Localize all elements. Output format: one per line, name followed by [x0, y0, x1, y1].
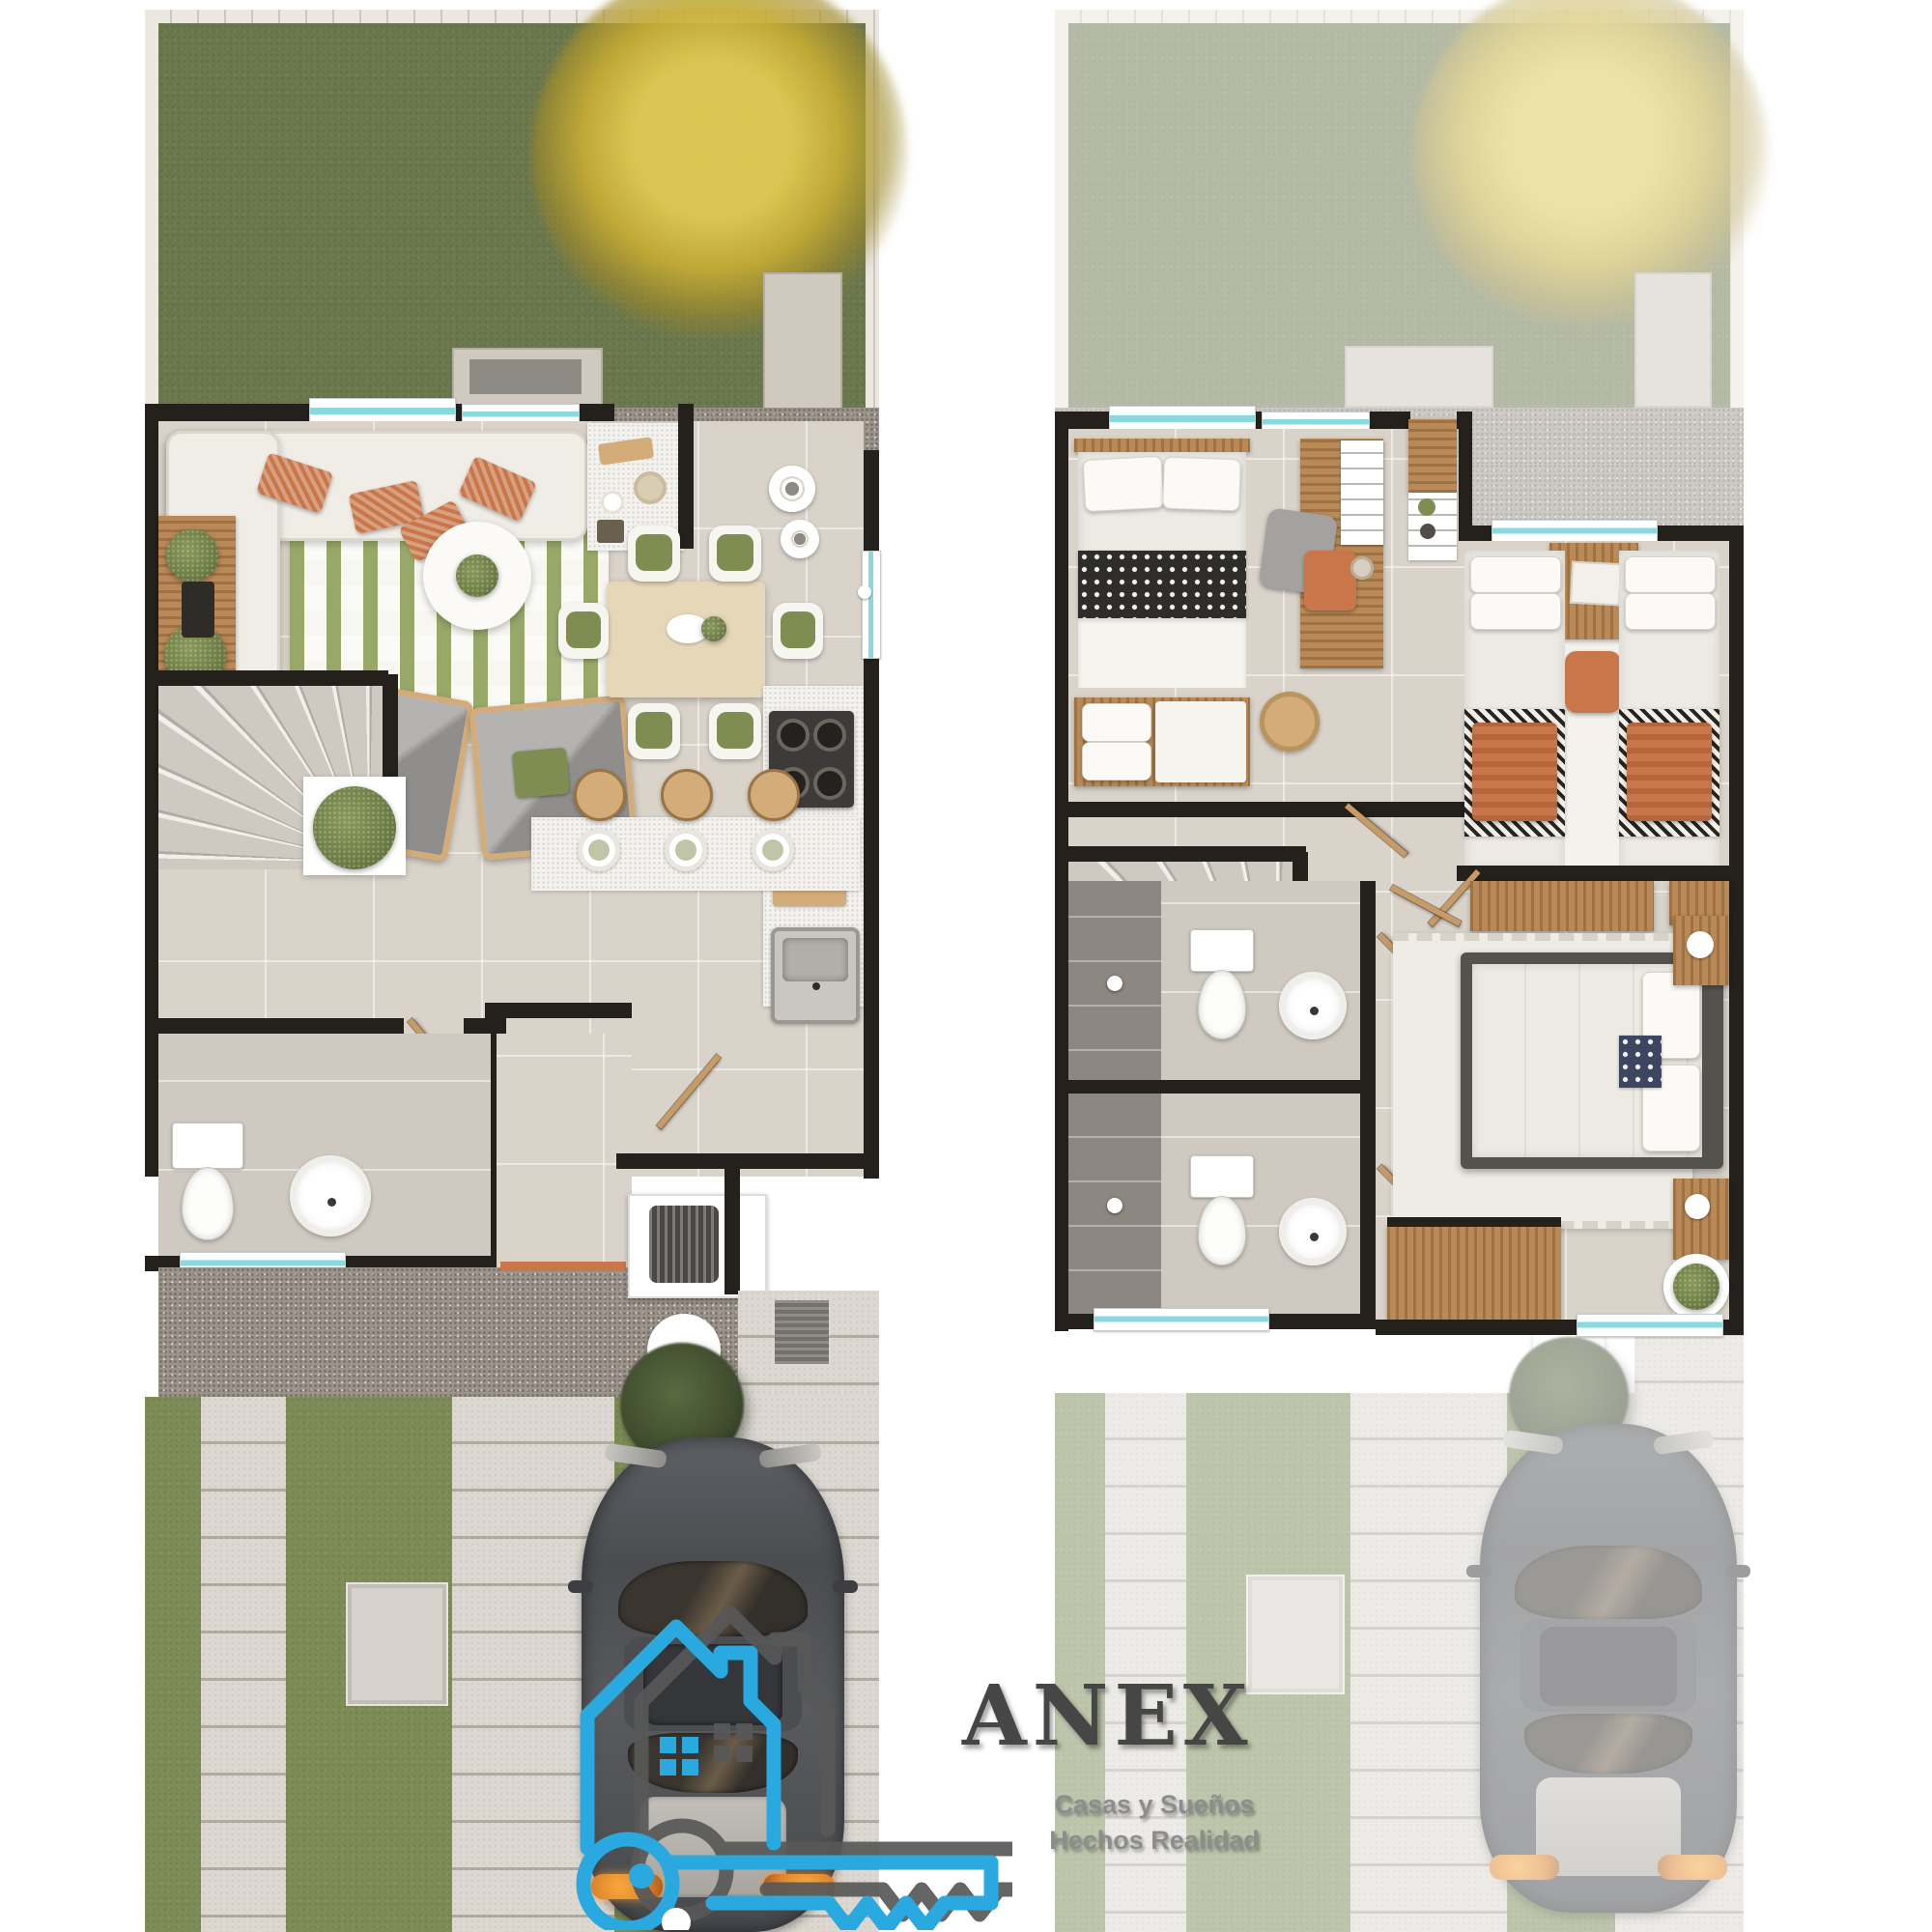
bed-duvet	[1078, 618, 1246, 688]
wardrobe-wall	[1387, 1217, 1561, 1227]
console-plant	[166, 529, 218, 582]
house-key-icon	[568, 1544, 1012, 1930]
anex-logo: ANEX Casas y Sueños Hechos Realidad	[568, 1544, 1302, 1922]
bench-pillow	[1082, 703, 1151, 742]
kitchen-sink	[771, 927, 860, 1024]
patio-step	[500, 1262, 626, 1271]
porch-wall	[724, 1169, 740, 1294]
bathroom-wall	[145, 1018, 404, 1034]
master-window	[1577, 1314, 1723, 1337]
door-mat	[775, 1300, 829, 1364]
hall-wardrobe	[1470, 881, 1654, 931]
paver-pad	[348, 1584, 446, 1704]
desk-clock	[1350, 556, 1374, 580]
small-plant	[1673, 1264, 1719, 1310]
house-wall	[616, 1153, 871, 1169]
bench-throw	[1155, 701, 1246, 782]
toilet-tank	[1190, 929, 1254, 972]
dining-chair	[709, 526, 761, 582]
shelf-bowl	[1418, 498, 1435, 516]
bar-stool	[661, 769, 713, 821]
console-decor	[182, 582, 214, 638]
place-setting	[752, 829, 794, 871]
bed-pillow	[1470, 556, 1561, 593]
car-rear-window	[1524, 1714, 1692, 1774]
place-setting	[578, 829, 620, 871]
accent-cushion	[1619, 1036, 1662, 1088]
dining-chair	[773, 603, 823, 659]
shelf-bowl	[1420, 524, 1435, 539]
terracotta-quilt	[1472, 723, 1557, 821]
house-wall	[145, 404, 158, 1177]
centerpiece-plant	[701, 616, 726, 641]
basket	[634, 471, 667, 504]
stair-plant	[313, 786, 396, 869]
car-mirror	[1725, 1565, 1750, 1577]
bathroom-sink	[1279, 1198, 1347, 1265]
nightstand	[1673, 1179, 1729, 1260]
wall-plate-decor	[769, 466, 815, 512]
nightstand-decor	[1685, 1194, 1710, 1219]
dining-chair	[558, 603, 609, 659]
round-tray-table	[1260, 692, 1320, 752]
bed-pillow	[1625, 593, 1716, 630]
car-mirror	[1466, 1565, 1492, 1577]
stove-burner	[777, 719, 810, 752]
bar-stool	[748, 769, 800, 821]
bathroom-window	[1094, 1308, 1269, 1331]
concrete-pad	[1345, 346, 1493, 408]
plate	[601, 491, 624, 514]
toilet-tank	[172, 1122, 243, 1169]
bed-pillow	[1083, 456, 1165, 512]
stair-wall	[145, 670, 388, 686]
stair-wall	[1055, 846, 1306, 862]
fridge-nook-wall	[485, 1003, 632, 1018]
dining-chair	[628, 526, 680, 582]
terracotta-quilt	[1627, 723, 1712, 821]
bathroom-wall	[1360, 881, 1376, 1325]
car-windshield	[1515, 1546, 1702, 1619]
house-wall	[678, 404, 694, 549]
bathroom-sink	[1279, 972, 1347, 1039]
bed-pillow	[1470, 593, 1561, 630]
bedroom2-wall	[1457, 866, 1744, 881]
door-knob	[858, 585, 871, 599]
desk-cushion	[1304, 551, 1356, 611]
orange-stool	[1565, 651, 1621, 713]
house-wall	[1055, 412, 1068, 1331]
tagline: Casas y Sueños Hechos Realidad	[1014, 1787, 1294, 1859]
tray	[597, 520, 624, 543]
table-plant	[456, 554, 498, 597]
wall-plate-decor	[781, 520, 819, 558]
bathroom-sink	[290, 1155, 371, 1236]
toilet-tank	[1190, 1155, 1254, 1198]
parked-car	[1480, 1424, 1737, 1913]
hall-floor	[497, 1034, 632, 1271]
bedroom1-wall	[1055, 802, 1472, 817]
concrete-pad	[1634, 272, 1712, 408]
side-window	[862, 551, 881, 659]
closet-nook	[1408, 419, 1457, 493]
car-taillight	[1658, 1855, 1727, 1880]
bed-headboard	[1074, 439, 1250, 452]
shower-head	[1107, 976, 1122, 991]
bed-pillow	[1162, 457, 1241, 512]
laptop	[1570, 561, 1622, 607]
desk-shelves	[1341, 440, 1383, 545]
shower-head	[1107, 1198, 1122, 1213]
car-taillight	[1490, 1855, 1559, 1880]
tagline-line1: Casas y Sueños	[1014, 1787, 1294, 1823]
floorplan-render: ANEX Casas y Sueños Hechos Realidad	[0, 0, 1932, 1932]
bedroom2-window	[1492, 520, 1658, 543]
tagline-line2: Hechos Realidad	[1014, 1823, 1294, 1859]
master-wardrobe	[1387, 1225, 1561, 1320]
bed-pillow	[1625, 556, 1716, 593]
bar-stool	[574, 769, 626, 821]
brand-name: ANEX	[962, 1667, 1254, 1765]
lounge-chair-pillow	[512, 748, 570, 799]
bathroom-wall	[1055, 1080, 1376, 1094]
car-sunroof	[1540, 1627, 1677, 1706]
paver-walkway	[201, 1397, 286, 1932]
concrete-pad	[763, 272, 842, 410]
house-wall	[1729, 526, 1744, 1335]
diamond-pattern-throw	[1078, 551, 1246, 618]
bench-pillow	[1082, 742, 1151, 781]
nightstand-lamp	[1687, 931, 1714, 958]
stove-burner	[813, 719, 846, 752]
dining-chair	[628, 703, 680, 759]
dining-chair	[709, 703, 761, 759]
washing-machine	[649, 1206, 719, 1283]
place-setting	[665, 829, 707, 871]
gravel-path	[1441, 464, 1744, 527]
concrete-pad-inset	[469, 359, 582, 394]
stove-burner	[813, 767, 846, 800]
